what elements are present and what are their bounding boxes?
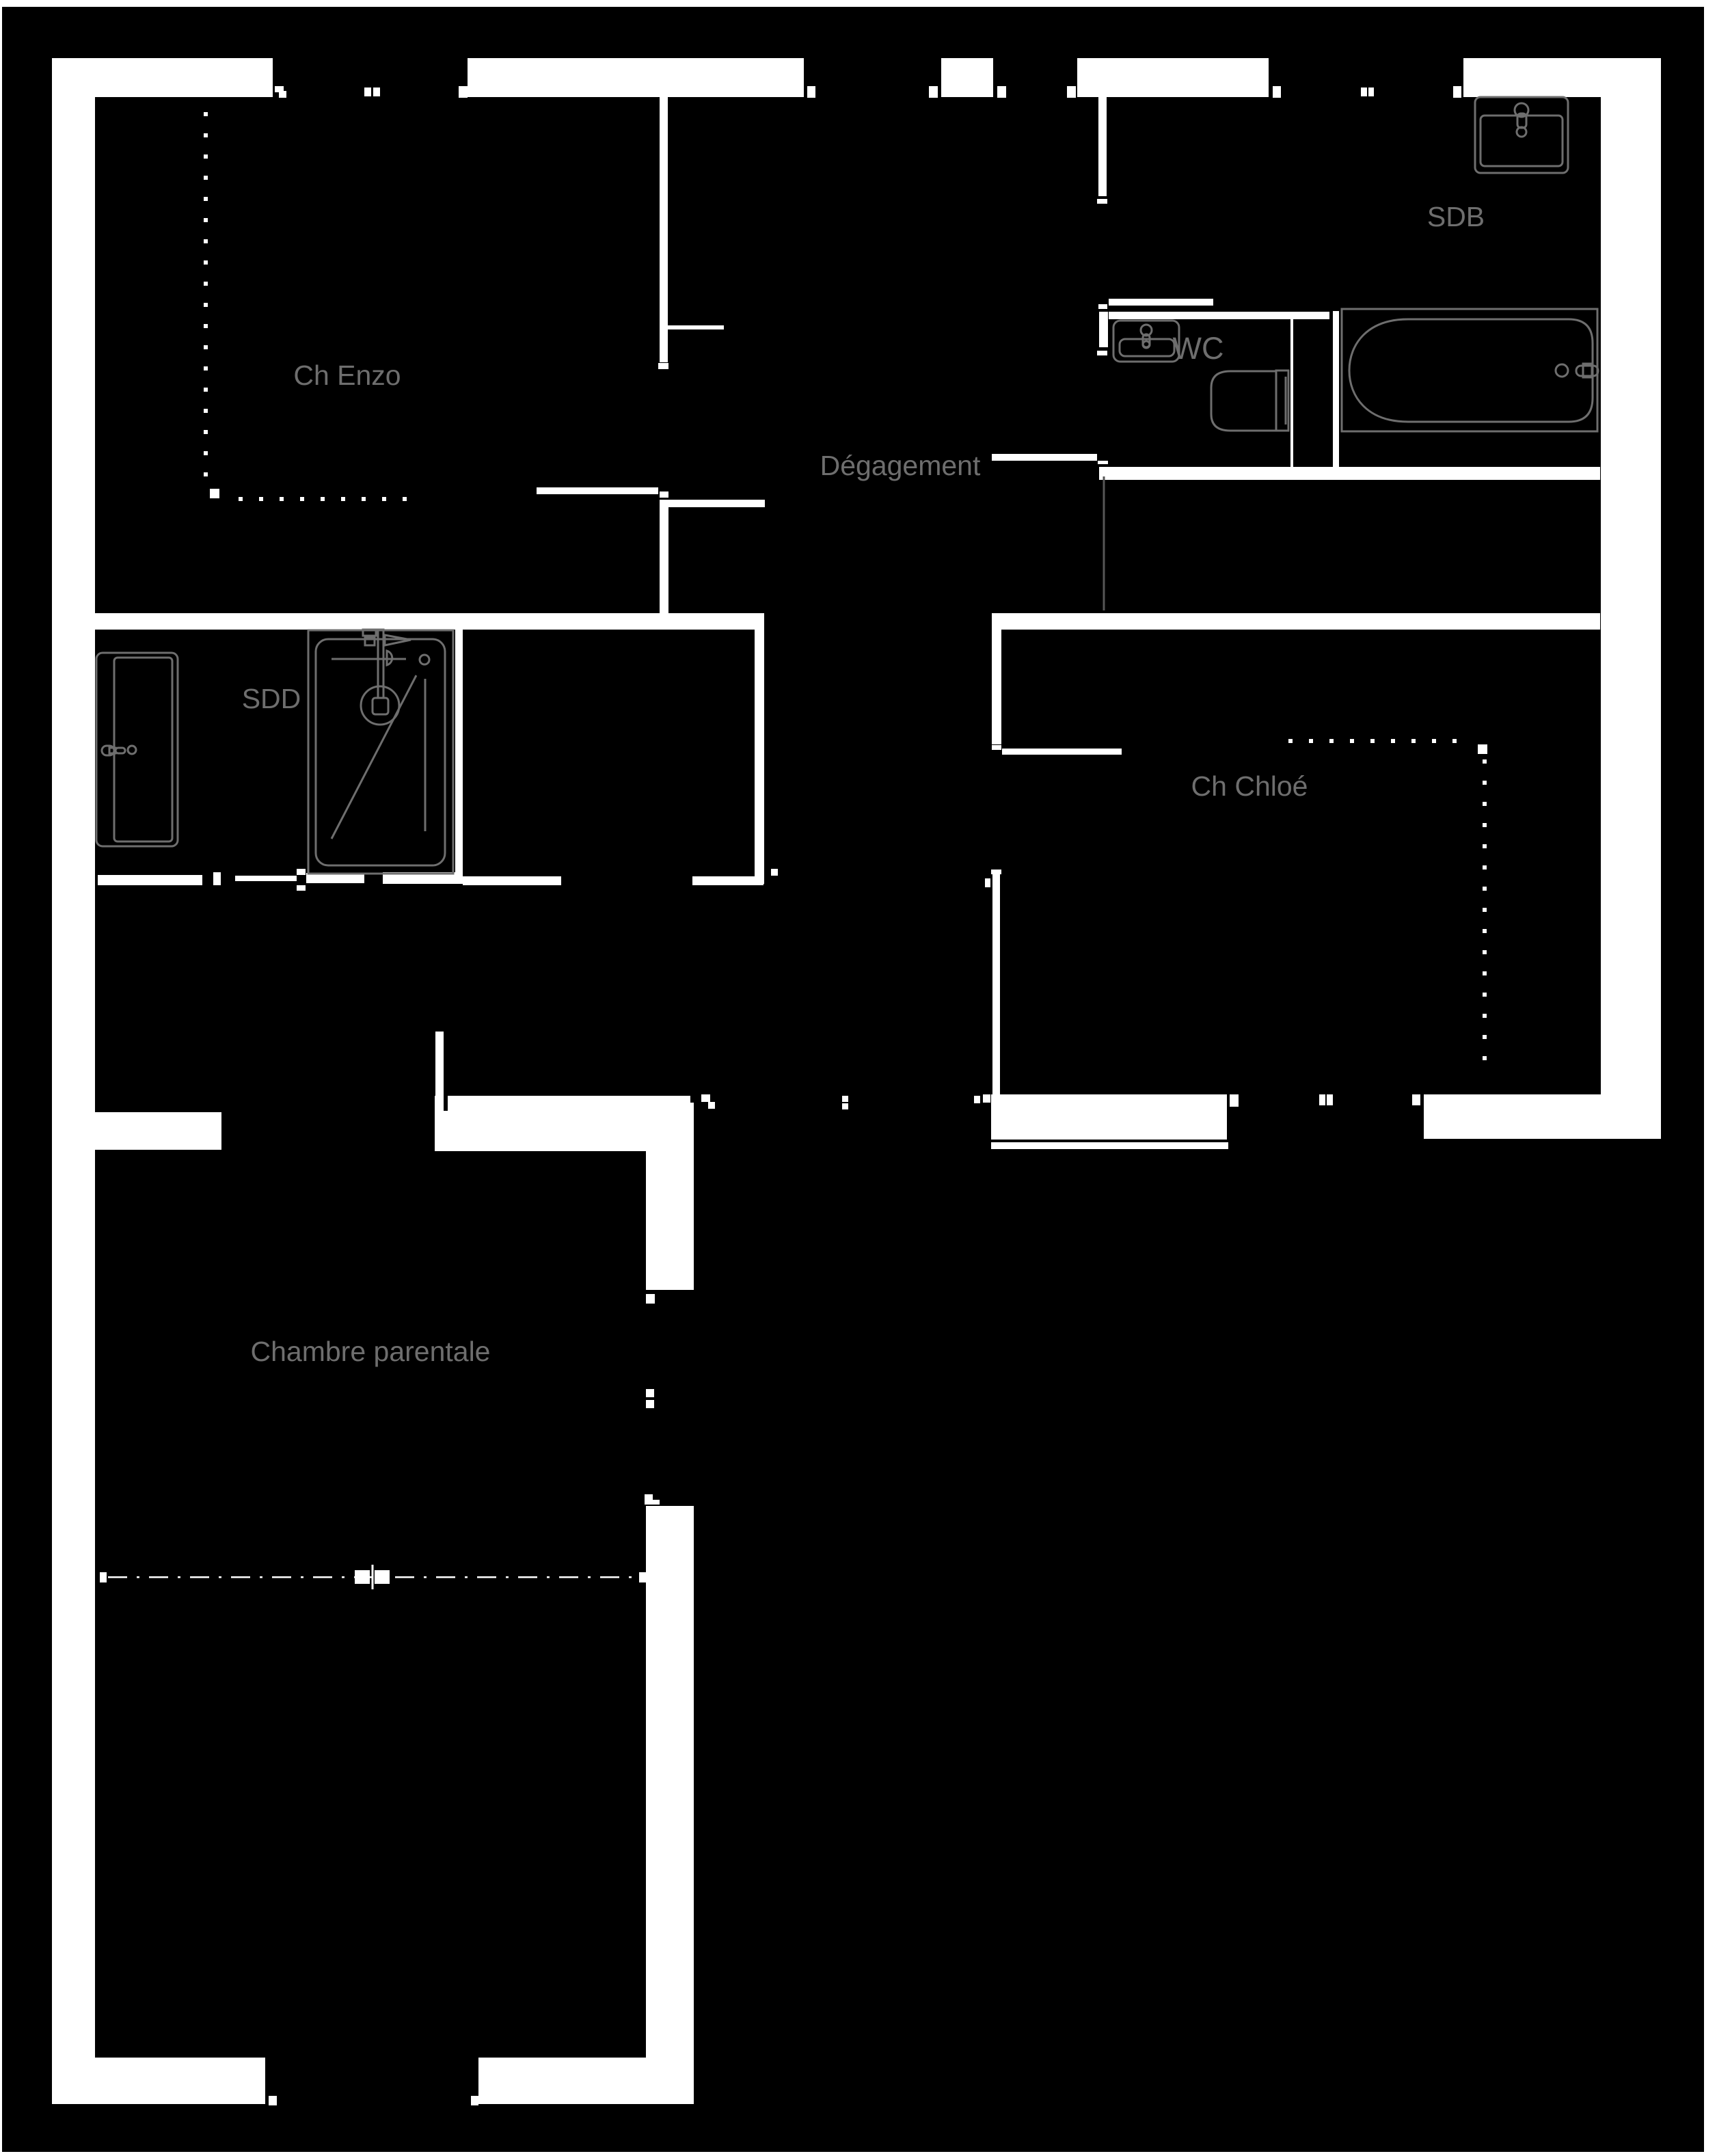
svg-text:Dégagement: Dégagement: [820, 450, 981, 481]
svg-text:SDB: SDB: [1427, 201, 1485, 232]
svg-text:Ch Chloé: Ch Chloé: [1191, 770, 1308, 802]
svg-text:WC: WC: [1173, 331, 1224, 366]
svg-text:SDD: SDD: [242, 683, 301, 714]
svg-text:Ch Enzo: Ch Enzo: [293, 360, 401, 391]
svg-text:Chambre parentale: Chambre parentale: [251, 1336, 491, 1367]
